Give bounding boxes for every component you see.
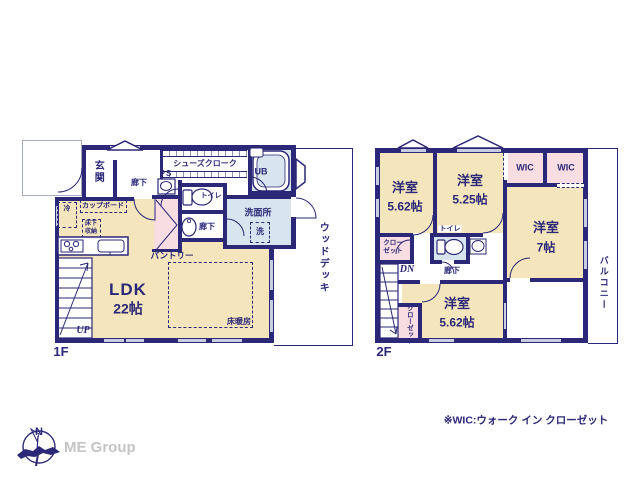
floor2-label: 2F (376, 345, 391, 359)
compass-icon: N (14, 418, 64, 472)
door-arc (296, 198, 316, 218)
closet1-label-2: ゼット (383, 249, 403, 256)
door-arc (58, 168, 82, 192)
door-arc (227, 219, 244, 236)
fridge-label: 冷 (64, 205, 71, 212)
washbasin-icon (182, 218, 196, 236)
gable-roof-icon (398, 140, 428, 148)
wood-deck-label: ウッドデッキ (317, 222, 328, 294)
gable-roof-icon (453, 136, 503, 148)
washroom-label: 洗面所 (244, 208, 271, 217)
door-arc (134, 199, 155, 220)
bedroom1-label: 洋室 (392, 181, 418, 195)
bedroom3-label: 洋室 (533, 221, 559, 235)
bedroom2-label: 洋室 (457, 174, 483, 188)
closet1-label-1: クロー (383, 241, 403, 248)
balcony-label: バルコニー (598, 256, 607, 311)
toilet-icon (437, 240, 463, 255)
bedroom4-size-label: 5.62帖 (439, 317, 474, 330)
entrance-label: 玄関 (92, 160, 103, 184)
wic-note: ※WIC:ウォーク イン クローゼット (444, 415, 609, 426)
floor1-label: 1F (53, 345, 68, 359)
wic2-label: WIC (557, 163, 575, 172)
stairs-up-label: UP (76, 326, 89, 337)
ldk-label: LDK (109, 281, 147, 299)
stairs-down (380, 264, 398, 338)
unit-bath-label: UB (255, 167, 268, 176)
door-arc (413, 215, 433, 235)
bath-bay-window (296, 159, 305, 189)
wic1-label: WIC (516, 163, 534, 172)
kitchen-counter-icon (58, 237, 128, 255)
underfloor-storage-label-2: 収納 (85, 229, 97, 235)
toilet2f-label: トイレ (439, 225, 462, 232)
toilet-label: トイレ (201, 192, 222, 199)
shoes-closet-label: シューズクローク (173, 160, 237, 168)
bedroom1-size-label: 5.62帖 (387, 201, 422, 214)
gable-roof-icon (107, 141, 143, 150)
hallway2-label: 廊下 (199, 223, 215, 231)
door-arc (510, 258, 530, 278)
ps-fixture-icon (158, 179, 175, 194)
closet2-label: クローゼット (405, 305, 412, 339)
stairs-down-label: DN (400, 265, 414, 276)
washer-label: 洗 (256, 228, 264, 236)
underfloor-storage-label-1: 床下 (85, 221, 97, 227)
pantry-label: パントリー (151, 252, 194, 261)
bedroom2-size-label: 5.25帖 (452, 194, 487, 207)
ldk-size-label: 22帖 (113, 302, 143, 317)
door-arc (422, 284, 440, 302)
cupboard-label: カップボード (82, 202, 124, 209)
washbasin-icon (470, 239, 486, 254)
hallway-label: 廊下 (131, 179, 147, 187)
floor-heating-label: 床暖房 (227, 318, 251, 326)
brand-label: ME Group (64, 440, 136, 456)
floor-plan-canvas: 玄関 廊下 PS シューズクローク UB トイレ 洗面所 洗 冷 カップボード … (0, 0, 640, 480)
hallway2f-label: 廊下 (444, 267, 460, 275)
door-arc (483, 213, 503, 233)
bedroom4-label: 洋室 (444, 297, 470, 311)
bedroom3-size-label: 7帖 (537, 242, 556, 255)
ps-label: PS (160, 170, 173, 178)
pantry-doors (156, 200, 177, 250)
